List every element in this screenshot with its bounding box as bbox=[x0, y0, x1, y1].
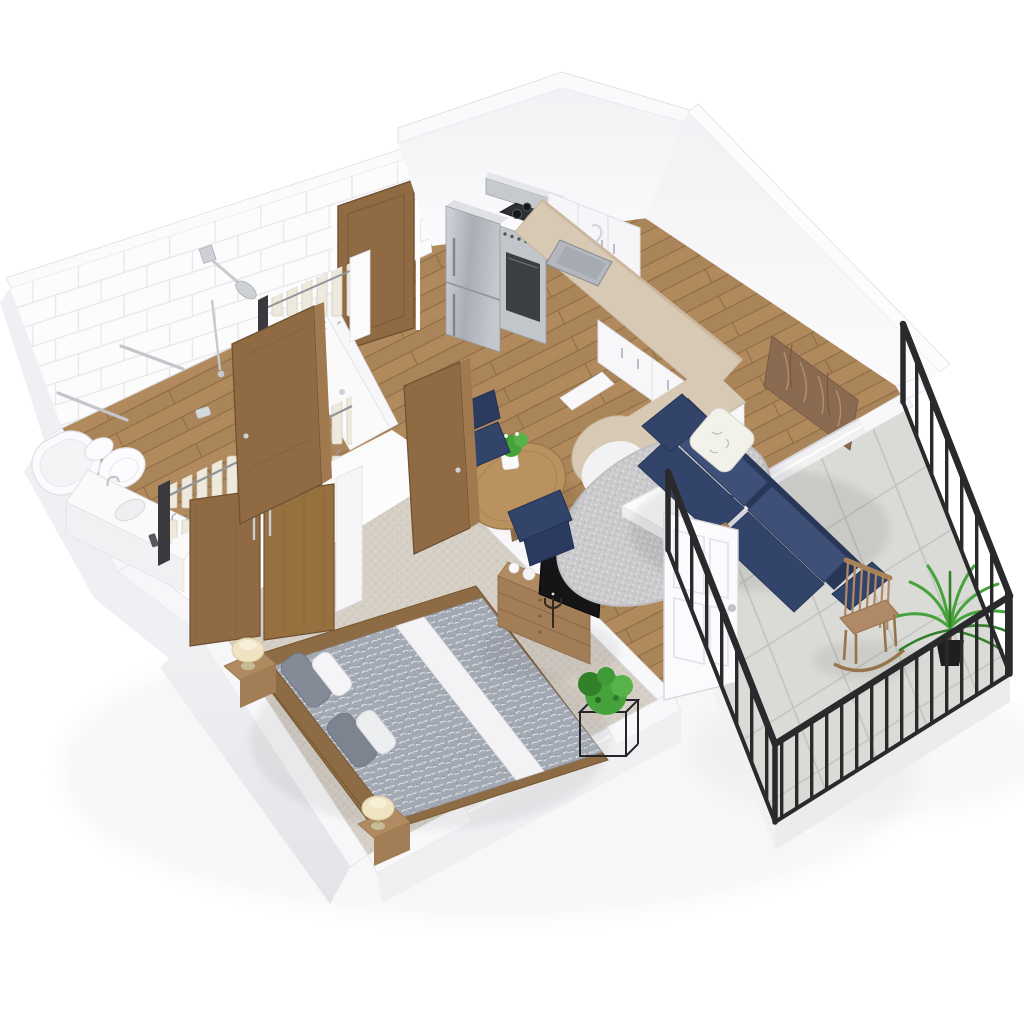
floor-plan-render bbox=[0, 0, 1024, 1024]
bedroom-door bbox=[404, 358, 480, 554]
refrigerator bbox=[446, 200, 508, 352]
closet-side-panel bbox=[350, 250, 370, 342]
screenshot-root: 3D isometric floor plan rendering of a o… bbox=[0, 0, 1024, 1024]
wardrobe-end-panel bbox=[336, 466, 362, 612]
